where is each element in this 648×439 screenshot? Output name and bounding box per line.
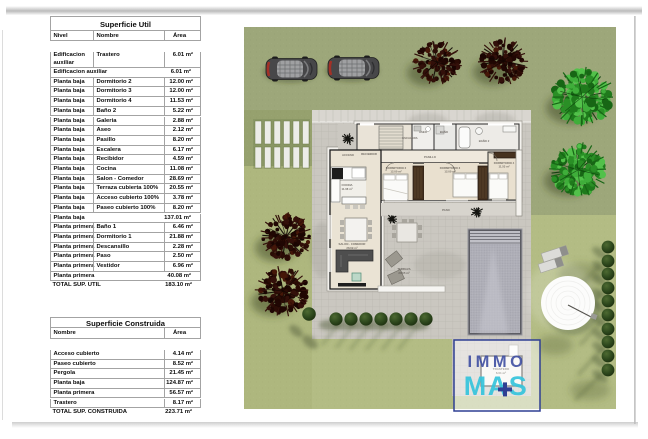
svg-text:28.69 m²: 28.69 m² [346, 246, 357, 250]
svg-text:RECIBIDOR: RECIBIDOR [361, 152, 377, 156]
svg-text:BAÑO 2: BAÑO 2 [479, 138, 490, 143]
svg-text:11.08 m²: 11.08 m² [341, 187, 352, 191]
svg-text:ACCESO: ACCESO [342, 153, 355, 157]
svg-text:11.53 m²: 11.53 m² [498, 165, 509, 169]
svg-text:ASEO: ASEO [419, 130, 428, 134]
svg-text:BAÑO: BAÑO [440, 129, 449, 134]
svg-text:20.55 m²: 20.55 m² [398, 271, 409, 275]
svg-text:ESCALERA: ESCALERA [402, 136, 417, 140]
svg-text:MAS: MAS [464, 371, 529, 401]
svg-text:12.00 m²: 12.00 m² [444, 170, 455, 174]
svg-text:12.00 m²: 12.00 m² [390, 170, 401, 174]
svg-text:IMMO: IMMO [468, 353, 527, 371]
svg-text:PASO: PASO [442, 208, 451, 212]
svg-text:PASILLO: PASILLO [424, 155, 437, 159]
